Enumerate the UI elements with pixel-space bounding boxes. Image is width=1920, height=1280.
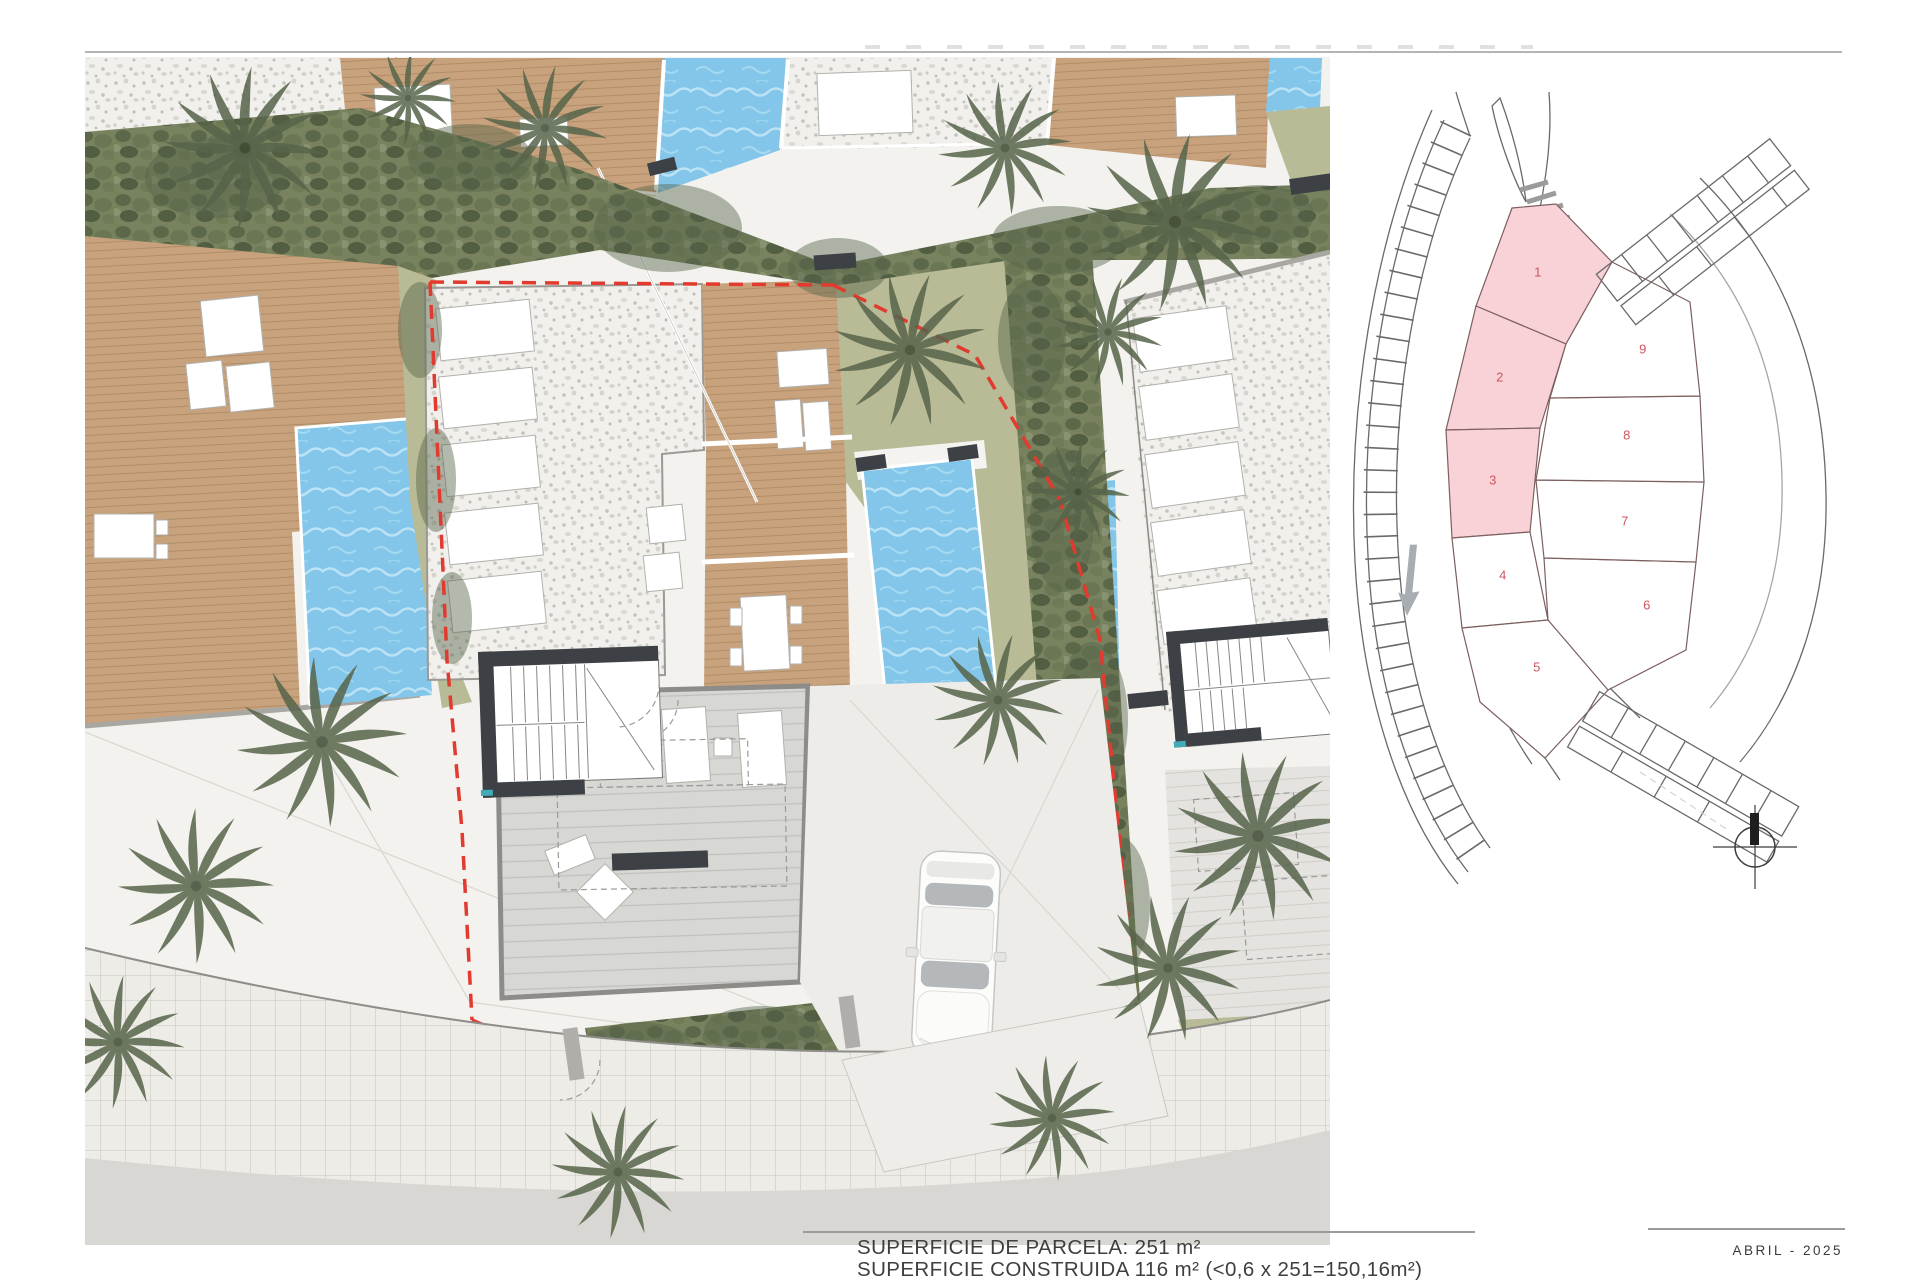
key-plot-8-label: 8	[1623, 428, 1631, 443]
north-compass-icon	[1640, 772, 1797, 889]
key-plot-7-label: 7	[1621, 514, 1629, 529]
key-plot-3-label: 3	[1489, 473, 1497, 488]
top-border-line	[85, 51, 1842, 53]
key-plot-1-label: 1	[1534, 265, 1542, 280]
key-plot-2-label: 2	[1496, 370, 1504, 385]
built-area-text: SUPERFICIE CONSTRUIDA 116 m² (<0,6 x 251…	[857, 1258, 1422, 1280]
plan-sheet: 1 2 3 4 5 6 7 8 9 SUPERFICIE DE PARCELA:…	[0, 0, 1920, 1280]
key-plot-5-label: 5	[1533, 660, 1541, 675]
key-plot-4-label: 4	[1499, 568, 1507, 583]
cropped-header-text	[865, 45, 1533, 49]
location-key-plan	[1335, 85, 1845, 900]
stairwell-right	[1164, 618, 1330, 748]
key-plot-8-shape	[1536, 396, 1704, 482]
key-plots	[1446, 204, 1704, 758]
date-text: ABRIL - 2025	[1648, 1243, 1843, 1258]
bench	[612, 850, 709, 870]
annotation-divider	[803, 1231, 1475, 1233]
key-plot-7-shape	[1536, 480, 1704, 562]
left-neighbour-villa	[85, 210, 438, 728]
stairwell	[476, 646, 663, 798]
key-plot-6-label: 6	[1643, 598, 1651, 613]
key-plot-9-label: 9	[1639, 342, 1647, 357]
parcel-area-text: SUPERFICIE DE PARCELA: 251 m²	[857, 1236, 1201, 1260]
site-plan	[85, 57, 1330, 1245]
date-divider	[1648, 1228, 1845, 1230]
